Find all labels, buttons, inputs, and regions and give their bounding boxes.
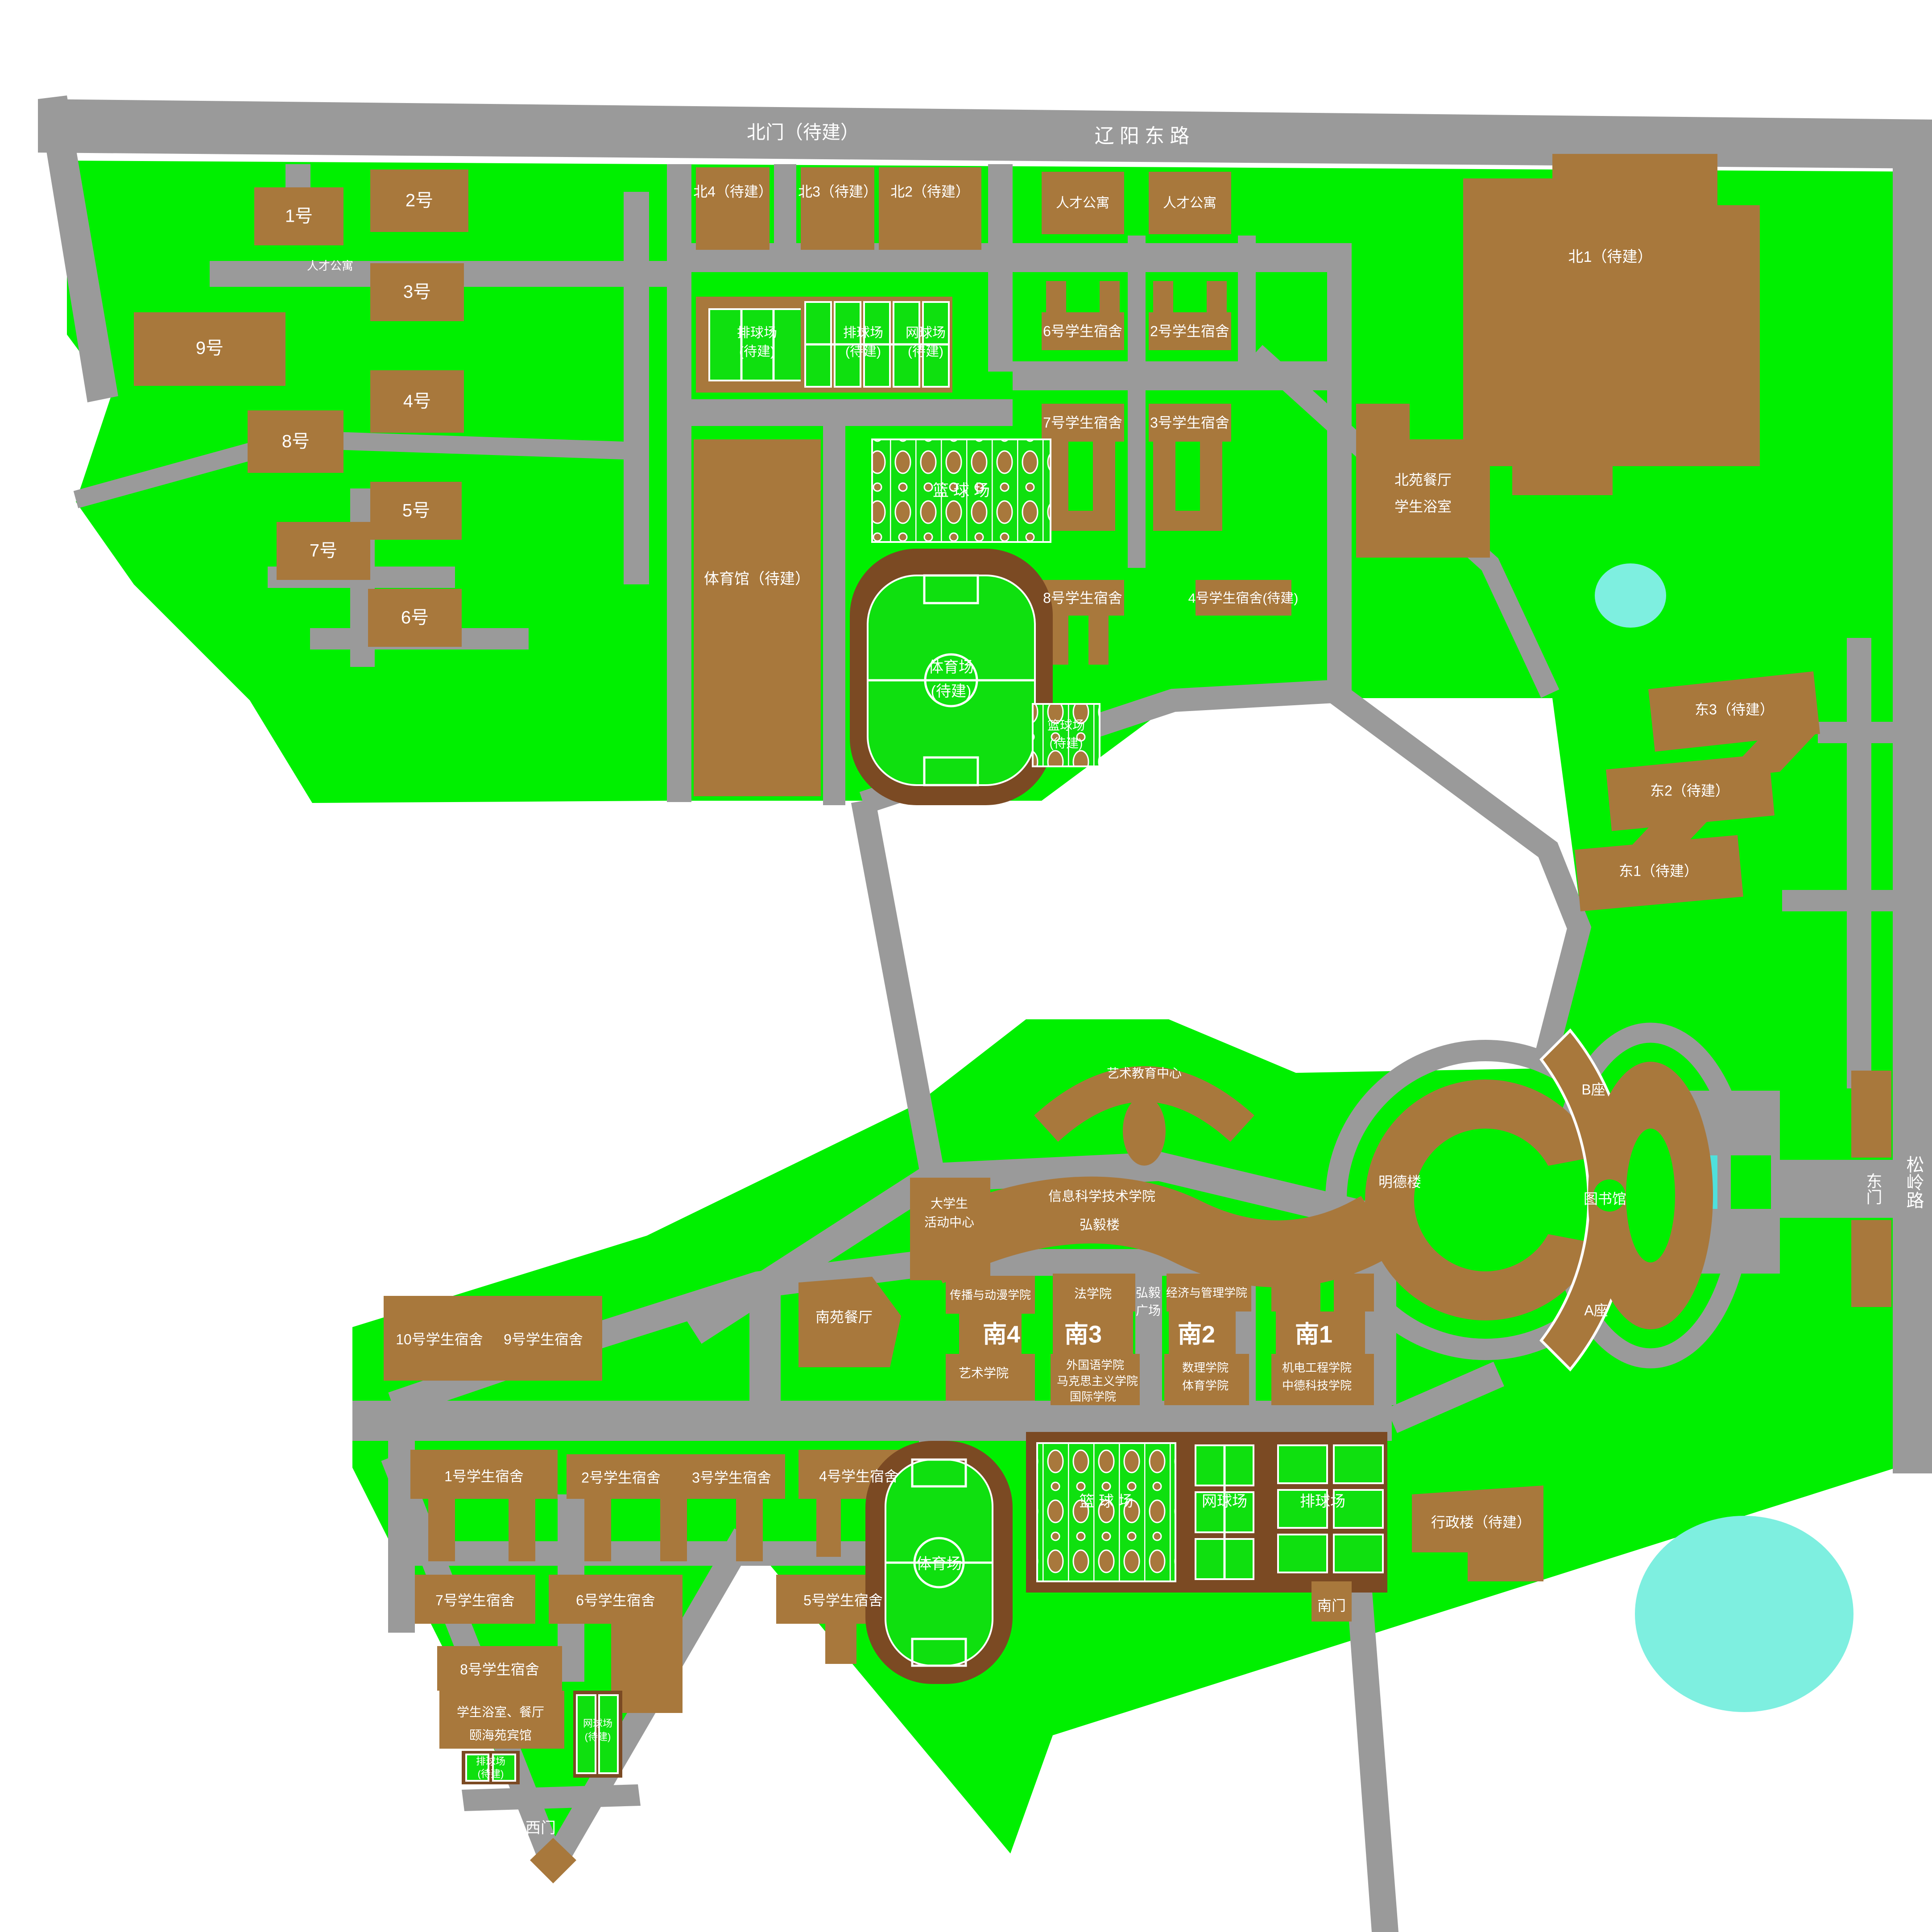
road-v-bar (462, 1784, 641, 1811)
label-dorm10-s: 10号学生宿舍 (396, 1331, 483, 1347)
label-block-b: B座 (1581, 1081, 1605, 1097)
label-dorm9-s: 9号学生宿舍 (504, 1331, 583, 1347)
stadium-north (850, 549, 1053, 805)
label-admin: 行政楼（待建） (1431, 1514, 1531, 1530)
label-tennis-tbd-1: 网球场 (906, 326, 946, 340)
label-south-gate: 南门 (1317, 1597, 1346, 1613)
label-2hao: 2号 (405, 191, 433, 211)
label-student-center-2: 活动中心 (924, 1215, 974, 1229)
label-tennis-tbd-2: (待建) (908, 344, 943, 359)
south-lake (1635, 1516, 1853, 1712)
label-bb-tbd-2: (待建) (1050, 736, 1083, 750)
courts-complex-south (1026, 1432, 1387, 1593)
label-stadium-n-2: (待建) (931, 683, 972, 700)
road-dorm-v1 (1128, 236, 1146, 568)
label-dorm8-s: 8号学生宿舍 (460, 1661, 539, 1677)
label-intl-college: 国际学院 (1070, 1390, 1116, 1403)
label-stadium-s: 体育场 (916, 1556, 962, 1572)
road-stadium-v (823, 426, 845, 805)
label-vb2-tbd-2: (待建) (845, 344, 881, 359)
road-east-stub2 (1782, 890, 1893, 911)
label-block-a: A座 (1584, 1302, 1608, 1318)
label-rencai1: 人才公寓 (1056, 196, 1109, 211)
label-foreign-college: 外国语学院 (1066, 1358, 1124, 1372)
label-library: 图书馆 (1584, 1191, 1626, 1207)
label-law-college: 法学院 (1074, 1287, 1112, 1300)
label-dorm8-n: 8号学生宿舍 (1043, 590, 1122, 606)
label-nan1: 南1 (1295, 1321, 1332, 1348)
label-student-center-1: 大学生 (931, 1196, 968, 1210)
label-dorm5-s: 5号学生宿舍 (803, 1592, 883, 1608)
label-rencai-area: 人才公寓 (307, 259, 353, 273)
label-tn-tbd-s-1: 网球场 (583, 1718, 612, 1729)
label-dong3: 东3（待建） (1695, 701, 1774, 717)
label-8hao: 8号 (282, 432, 310, 451)
label-stadium-n-1: 体育场 (928, 659, 974, 676)
label-rencai2: 人才公寓 (1163, 196, 1216, 211)
building-bei4 (696, 167, 769, 250)
label-dong2: 东2（待建） (1650, 782, 1729, 798)
label-mingde: 明德楼 (1378, 1174, 1421, 1190)
label-6hao: 6号 (401, 608, 429, 628)
label-songling-road: 松岭路 (1903, 1155, 1924, 1209)
label-dorm6-n: 6号学生宿舍 (1043, 323, 1122, 339)
label-west-gate: 西门 (525, 1820, 556, 1837)
plaza-lawn (1731, 1155, 1771, 1209)
label-dorm4-n: 4号学生宿舍(待建) (1188, 591, 1299, 606)
label-hongyi-plaza-1: 弘毅 (1136, 1286, 1161, 1299)
label-bath-1: 学生浴室、餐厅 (457, 1705, 544, 1719)
label-1hao: 1号 (285, 207, 313, 226)
label-dorm3-s: 3号学生宿舍 (692, 1469, 771, 1485)
label-media-college: 传播与动漫学院 (950, 1288, 1031, 1302)
label-math-college: 数理学院 (1182, 1361, 1229, 1374)
campus-map-svg: 北门（待建） 辽 阳 东 路 松岭路 东门 南门 西门 1号 2号 人才公寓 3… (0, 0, 1932, 1932)
label-basketball-s: 篮 球 场 (1080, 1493, 1134, 1510)
label-9hao: 9号 (196, 339, 223, 358)
label-vb-tbd-s-2: (待建) (478, 1768, 504, 1779)
road-dorm-v2 (1238, 236, 1256, 363)
label-econ-college: 经济与管理学院 (1166, 1286, 1247, 1299)
east-gate-block-bottom (1851, 1220, 1891, 1307)
label-basketball-n: 篮 球 场 (933, 481, 990, 500)
label-canteen-n-2: 学生浴室 (1394, 498, 1452, 514)
label-vb-tbd-2: (待建) (739, 344, 775, 359)
label-canteen-n-1: 北苑餐厅 (1394, 472, 1452, 488)
north-pond (1595, 563, 1666, 628)
art-center-oval (1123, 1096, 1166, 1166)
label-pe-college: 体育学院 (1182, 1379, 1229, 1392)
label-mech-college: 机电工程学院 (1282, 1361, 1352, 1374)
label-dorm7-n: 7号学生宿舍 (1043, 414, 1122, 430)
road-songling (1893, 120, 1932, 1473)
label-tn-tbd-s-2: (待建) (585, 1731, 611, 1742)
label-vb2-tbd-1: 排球场 (843, 326, 883, 340)
label-vb-tbd-s-1: 排球场 (476, 1756, 505, 1767)
label-info-college: 信息科学技术学院 (1048, 1189, 1155, 1204)
label-bb-tbd-1: 篮球场 (1047, 718, 1085, 732)
label-north-gate: 北门（待建） (747, 122, 859, 143)
road-canteen-v (749, 1276, 781, 1405)
label-south-canteen: 南苑餐厅 (815, 1309, 873, 1325)
label-dorm1-s: 1号学生宿舍 (444, 1468, 524, 1484)
label-bei3: 北3（待建） (798, 183, 877, 199)
label-liaoyang-road: 辽 阳 东 路 (1095, 125, 1190, 147)
east-gate-block-top (1851, 1071, 1891, 1158)
label-dong1: 东1（待建） (1619, 863, 1698, 879)
label-dorm4-s: 4号学生宿舍 (819, 1468, 898, 1484)
road-east-inner (1847, 638, 1871, 1088)
label-art-center: 艺术教育中心 (1107, 1066, 1182, 1080)
label-dorm3-n: 3号学生宿舍 (1150, 414, 1229, 430)
label-dorm7-s: 7号学生宿舍 (435, 1592, 515, 1608)
road-north-h3 (667, 399, 1013, 426)
label-volleyball-s: 排球场 (1300, 1493, 1345, 1510)
label-east-gate: 东门 (1864, 1173, 1882, 1205)
label-bath-2: 颐海苑宾馆 (469, 1728, 532, 1742)
road-nw-v1 (624, 192, 649, 584)
label-7hao: 7号 (310, 541, 337, 561)
road-north-v-d (1327, 272, 1352, 691)
label-marx-college: 马克思主义学院 (1057, 1374, 1138, 1388)
road-east-stub1 (1818, 722, 1893, 743)
label-nan3: 南3 (1064, 1321, 1102, 1348)
label-art-college: 艺术学院 (959, 1366, 1009, 1380)
campus-map: 北门（待建） 辽 阳 东 路 松岭路 东门 南门 西门 1号 2号 人才公寓 3… (0, 0, 1932, 1932)
building-bei2 (879, 167, 981, 250)
label-3hao: 3号 (403, 282, 431, 302)
basketball-tbd-small (1033, 704, 1100, 766)
label-dorm2-n: 2号学生宿舍 (1150, 323, 1229, 339)
building-bei1 (1463, 154, 1760, 495)
label-5hao: 5号 (402, 501, 430, 521)
label-vb-tbd-1: 排球场 (737, 326, 777, 340)
label-hongyi-bldg: 弘毅楼 (1080, 1218, 1120, 1233)
label-dorm6-s: 6号学生宿舍 (576, 1592, 655, 1608)
label-tennis-s: 网球场 (1202, 1493, 1247, 1510)
label-gym: 体育馆（待建） (704, 571, 810, 587)
label-sino-german: 中德科技学院 (1282, 1379, 1352, 1392)
label-dorm2-s: 2号学生宿舍 (581, 1469, 661, 1485)
label-nan2: 南2 (1178, 1321, 1215, 1348)
label-bei4: 北4（待建） (693, 183, 773, 199)
label-bei2: 北2（待建） (890, 183, 970, 199)
label-hongyi-plaza-2: 广场 (1136, 1303, 1161, 1317)
label-nan4: 南4 (983, 1321, 1020, 1348)
building-bei3 (801, 167, 874, 250)
label-bei1: 北1（待建） (1568, 248, 1653, 265)
gymnasium-tbd (694, 439, 821, 796)
label-4hao: 4号 (403, 392, 431, 411)
